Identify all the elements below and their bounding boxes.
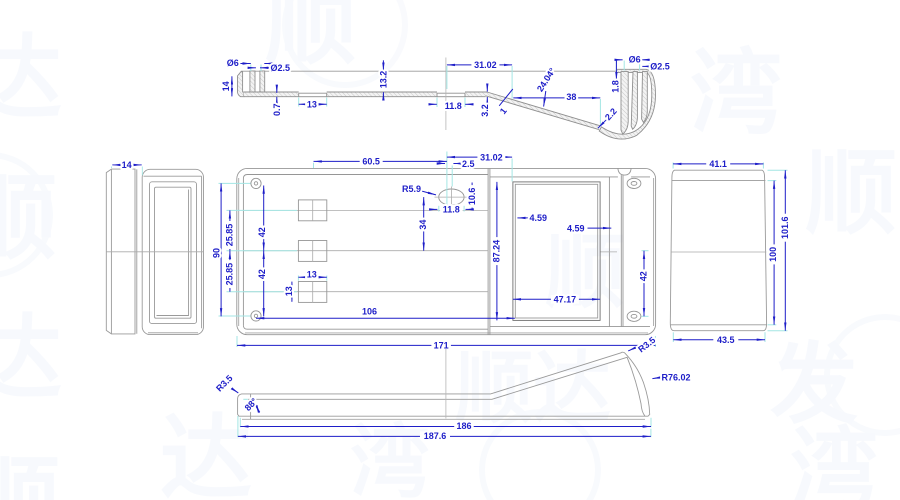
svg-text:90: 90 — [212, 248, 222, 258]
svg-text:14: 14 — [122, 160, 132, 170]
svg-text:171: 171 — [434, 341, 449, 351]
svg-text:11.8: 11.8 — [443, 204, 460, 214]
svg-text:0.7: 0.7 — [272, 104, 282, 117]
svg-text:R5.9: R5.9 — [402, 184, 421, 194]
svg-text:R3.5: R3.5 — [636, 335, 657, 355]
svg-text:湾: 湾 — [690, 43, 782, 145]
svg-text:10.6: 10.6 — [467, 188, 477, 206]
svg-text:2.5: 2.5 — [462, 159, 475, 169]
svg-text:湾: 湾 — [350, 418, 430, 500]
svg-text:106: 106 — [362, 307, 377, 317]
svg-text:25.85: 25.85 — [225, 224, 235, 247]
svg-text:187.6: 187.6 — [424, 431, 447, 441]
svg-text:顺达: 顺达 — [455, 344, 611, 432]
svg-text:24.04°: 24.04° — [535, 66, 558, 94]
svg-text:43.5: 43.5 — [717, 335, 735, 345]
svg-text:顺: 顺 — [0, 450, 60, 500]
svg-text:4.59: 4.59 — [567, 223, 585, 233]
svg-text:11.8: 11.8 — [445, 101, 462, 111]
svg-text:13: 13 — [307, 269, 317, 279]
svg-text:42: 42 — [639, 271, 649, 281]
svg-text:Ø2.5: Ø2.5 — [650, 62, 670, 72]
svg-text:100: 100 — [768, 247, 778, 262]
svg-text:2.2: 2.2 — [603, 106, 619, 122]
svg-text:42: 42 — [257, 269, 267, 279]
svg-text:41.1: 41.1 — [709, 159, 727, 169]
svg-text:13: 13 — [284, 286, 294, 296]
svg-text:34: 34 — [418, 220, 428, 230]
svg-text:顺: 顺 — [0, 168, 57, 270]
svg-text:Ø6: Ø6 — [629, 54, 641, 64]
svg-text:Ø6: Ø6 — [227, 58, 239, 68]
svg-text:186: 186 — [456, 421, 471, 431]
svg-text:31.02: 31.02 — [474, 60, 497, 70]
svg-text:47.17: 47.17 — [554, 295, 577, 305]
svg-text:13.2: 13.2 — [379, 71, 389, 89]
svg-text:1.8: 1.8 — [611, 80, 621, 93]
svg-text:42: 42 — [257, 227, 267, 237]
svg-text:87.24: 87.24 — [492, 240, 502, 263]
svg-text:R3.5: R3.5 — [214, 373, 235, 394]
svg-text:达: 达 — [0, 308, 62, 410]
svg-text:湾: 湾 — [790, 420, 878, 500]
svg-text:达: 达 — [0, 28, 62, 130]
svg-text:R76.02: R76.02 — [662, 373, 691, 383]
svg-text:60.5: 60.5 — [362, 157, 380, 167]
svg-text:1: 1 — [498, 106, 509, 116]
svg-text:Ø2.5: Ø2.5 — [271, 63, 291, 73]
svg-text:14: 14 — [221, 81, 231, 91]
svg-text:31.02: 31.02 — [480, 152, 503, 162]
svg-text:顺: 顺 — [805, 143, 897, 245]
svg-text:4.59: 4.59 — [530, 213, 548, 223]
svg-text:13: 13 — [307, 100, 317, 110]
svg-text:101.6: 101.6 — [780, 216, 790, 239]
svg-text:25.85: 25.85 — [225, 263, 235, 286]
svg-text:38: 38 — [566, 92, 576, 102]
svg-text:3.2: 3.2 — [480, 104, 490, 117]
